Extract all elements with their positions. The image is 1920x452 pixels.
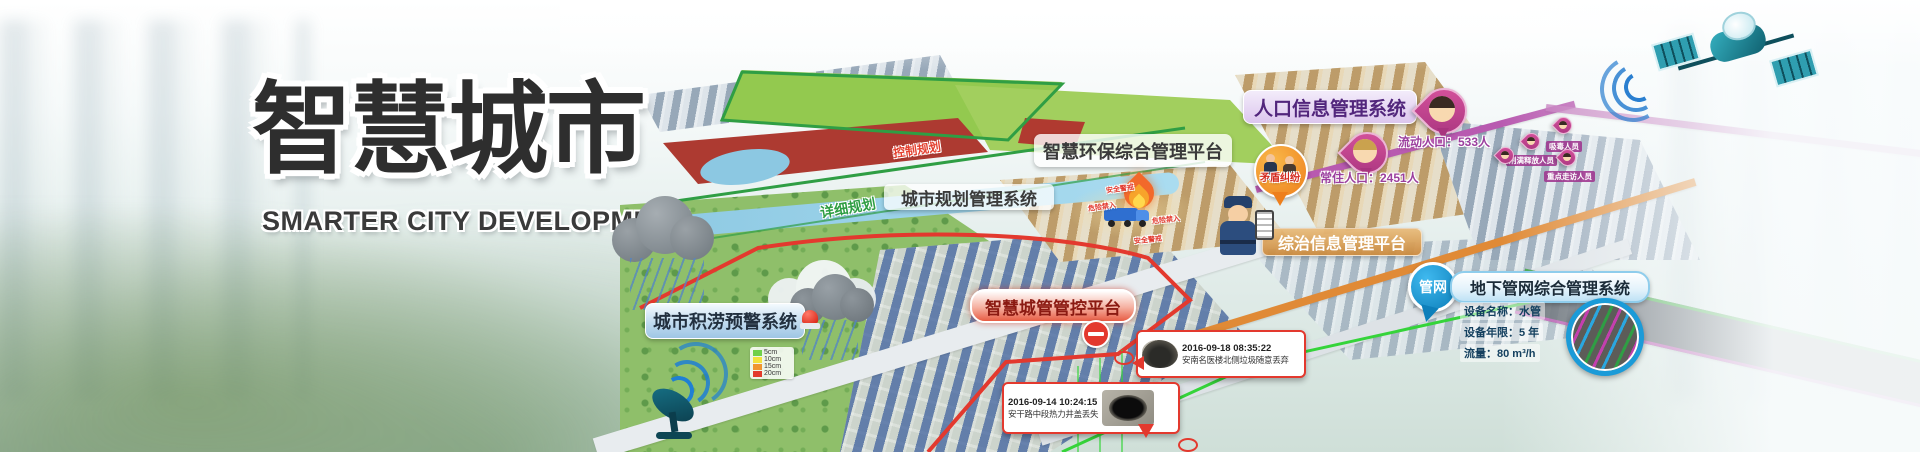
legend-label: 15cm xyxy=(764,363,781,370)
satellite-signal-icon xyxy=(1588,30,1668,102)
population-system-label: 人口信息管理系统 xyxy=(1243,90,1417,124)
pipe-detail-panel: 设备名称：水管 设备年限：5 年 流量：80 m³/h xyxy=(1460,302,1545,365)
legend-label: 5cm xyxy=(764,349,777,356)
policeman-figure xyxy=(1214,196,1272,260)
event-spot-marker xyxy=(1114,351,1134,365)
pipe-network-system-text: 地下管网综合管理系统 xyxy=(1470,275,1630,299)
pipe-detail-row: 流量：80 m³/h xyxy=(1460,344,1540,362)
event-time: 2016-09-18 08:35:22 xyxy=(1182,343,1289,354)
event-callout-garbage: 2016-09-18 08:35:22 安南名医楼北侧垃圾随意丢弃 xyxy=(1136,330,1306,378)
manhole-photo xyxy=(1102,390,1154,426)
ground-dish-icon xyxy=(648,386,702,444)
flood-warning-system-text: 城市积涝预警系统 xyxy=(653,308,797,334)
no-entry-sign-icon xyxy=(1082,320,1110,348)
solar-panel-right xyxy=(1769,48,1819,87)
governance-platform-label: 综治信息管理平台 xyxy=(1262,228,1422,256)
legend-label: 10cm xyxy=(764,356,781,363)
event-callout-manhole: 2016-09-14 10:24:15 安干路中段热力井盖丢失 xyxy=(1002,382,1180,434)
planning-system-label: 城市规划管理系统 xyxy=(884,184,1054,210)
planning-system-text: 城市规划管理系统 xyxy=(901,185,1037,210)
flood-warning-system-label: 城市积涝预警系统 xyxy=(645,303,805,339)
callout-tail xyxy=(1138,424,1154,446)
environment-platform-label: 智慧环保综合管理平台 xyxy=(1034,134,1232,167)
environment-platform-text: 智慧环保综合管理平台 xyxy=(1043,138,1223,164)
banner-title: 智慧城市 xyxy=(252,48,644,193)
pipe-detail-row: 设备名称：水管 xyxy=(1460,302,1545,320)
pipe-network-pin-text: 管网 xyxy=(1419,277,1447,297)
flood-depth-legend: 5cm 10cm 15cm 20cm xyxy=(750,347,794,379)
small-person-pin xyxy=(1558,148,1576,172)
smart-city-banner: 智慧城市 SMARTER CITY DEVELOPMENT 城市积涝预警系统 xyxy=(0,0,1920,452)
event-spot-marker xyxy=(1178,438,1198,452)
small-person-pin xyxy=(1554,116,1572,140)
small-person-pin xyxy=(1496,146,1514,170)
population-system-text: 人口信息管理系统 xyxy=(1254,94,1406,121)
legend-label: 20cm xyxy=(764,370,781,377)
tablet-icon xyxy=(1255,210,1274,240)
city-management-platform-label: 智慧城管管控平台 xyxy=(970,289,1136,323)
floating-population-stat: 流动人口：533人 xyxy=(1398,133,1490,150)
small-person-pin xyxy=(1522,132,1540,156)
pipe-detail-row: 设备年限：5 年 xyxy=(1460,323,1543,341)
key-visit-person-tag: 重点走访人员 xyxy=(1544,171,1595,182)
pipe-network-system-label: 地下管网综合管理系统 xyxy=(1450,271,1650,303)
city-management-platform-text: 智慧城管管控平台 xyxy=(985,294,1121,319)
pipe-magnifier-view xyxy=(1566,298,1644,376)
garbage-photo xyxy=(1142,340,1178,368)
event-desc: 安干路中段热力井盖丢失 xyxy=(1008,408,1098,420)
event-time: 2016-09-14 10:24:15 xyxy=(1008,397,1098,408)
event-desc: 安南名医楼北侧垃圾随意丢弃 xyxy=(1182,354,1289,366)
dispute-tag: 矛盾纠纷 xyxy=(1260,169,1300,184)
siren-icon xyxy=(800,308,820,331)
resident-population-stat: 常住人口：2451人 xyxy=(1320,169,1419,186)
governance-platform-text: 综治信息管理平台 xyxy=(1278,230,1406,254)
